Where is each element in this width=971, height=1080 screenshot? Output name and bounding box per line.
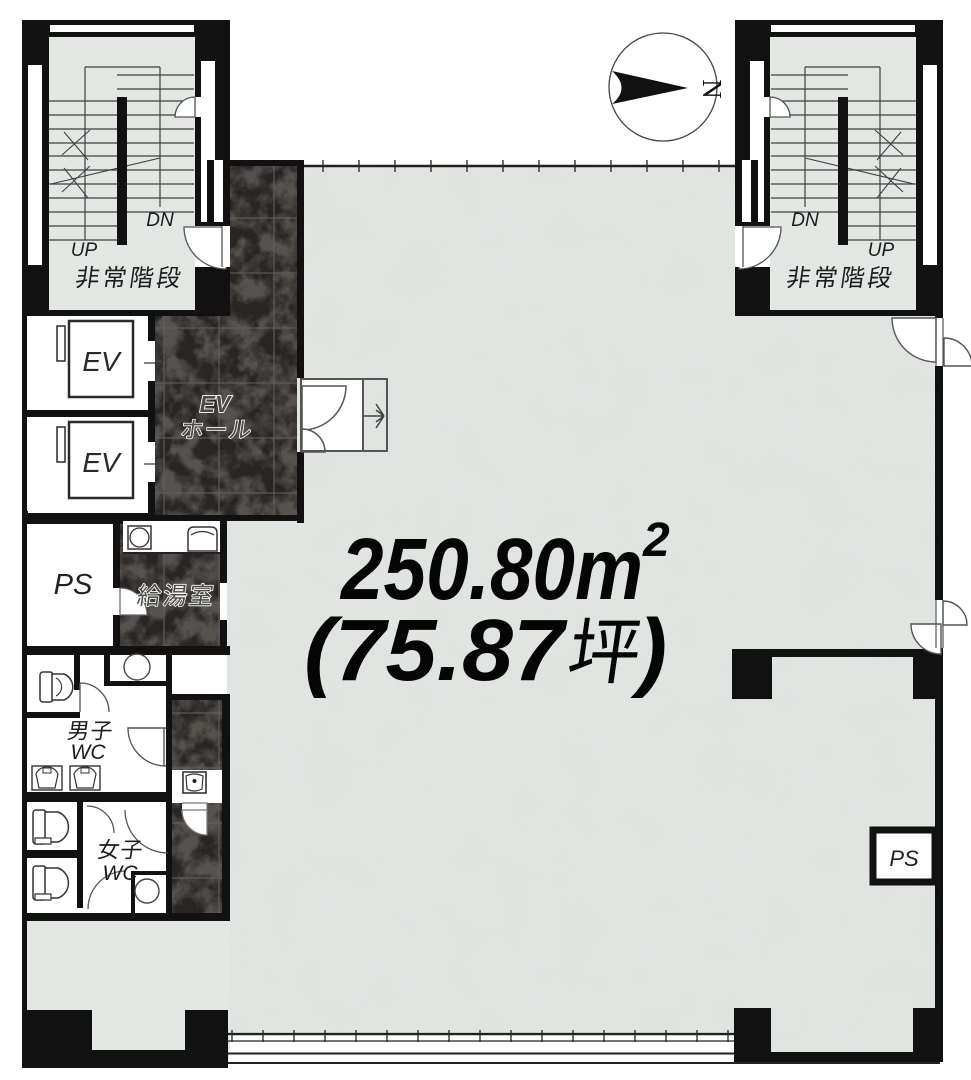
svg-text:UP: UP: [71, 240, 98, 261]
svg-text:EV: EV: [200, 391, 232, 417]
svg-text:DN: DN: [146, 210, 174, 231]
svg-text:DN: DN: [791, 210, 819, 231]
svg-text:PS: PS: [54, 569, 93, 601]
svg-text:UP: UP: [868, 240, 895, 261]
svg-text:WC: WC: [71, 741, 107, 764]
svg-text:PS: PS: [889, 846, 919, 871]
svg-text:2: 2: [642, 514, 670, 567]
svg-text:EV: EV: [82, 447, 122, 478]
svg-text:N: N: [697, 79, 727, 99]
svg-text:(75.87: (75.87: [304, 602, 568, 699]
svg-text:EV: EV: [82, 346, 122, 377]
svg-text:WC: WC: [103, 862, 139, 885]
